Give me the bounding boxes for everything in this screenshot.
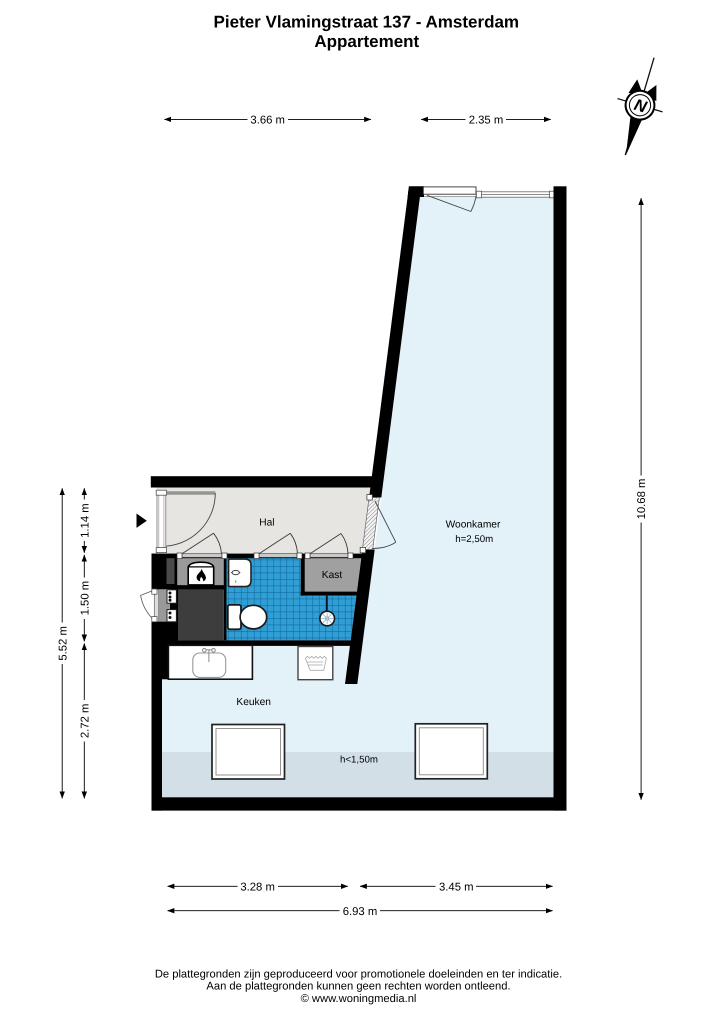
svg-text:h=2,50m: h=2,50m — [455, 534, 493, 545]
svg-text:1.50 m: 1.50 m — [79, 581, 91, 616]
svg-text:6.93 m: 6.93 m — [343, 906, 378, 918]
svg-text:Pieter Vlamingstraat 137 - Ams: Pieter Vlamingstraat 137 - Amsterdam — [214, 12, 520, 31]
svg-text:Appartement: Appartement — [314, 32, 419, 51]
svg-text:Woonkamer: Woonkamer — [446, 520, 501, 531]
svg-text:Kast: Kast — [322, 570, 343, 581]
svg-text:Hal: Hal — [259, 517, 274, 528]
svg-text:De plattegronden zijn geproduc: De plattegronden zijn geproduceerd voor … — [155, 968, 562, 980]
svg-text:Aan de plattegronden kunnen ge: Aan de plattegronden kunnen geen rechten… — [206, 981, 510, 993]
svg-text:3.66 m: 3.66 m — [250, 115, 285, 127]
svg-text:© www.woningmedia.nl: © www.woningmedia.nl — [301, 993, 417, 1005]
svg-text:2.35 m: 2.35 m — [469, 115, 504, 127]
svg-text:Keuken: Keuken — [236, 697, 271, 708]
svg-text:h<1,50m: h<1,50m — [340, 754, 378, 765]
svg-text:1.14 m: 1.14 m — [79, 503, 91, 538]
svg-text:3.28 m: 3.28 m — [240, 881, 275, 893]
svg-text:3.45 m: 3.45 m — [439, 881, 474, 893]
svg-text:5.52 m: 5.52 m — [57, 626, 69, 661]
svg-text:2.72 m: 2.72 m — [79, 704, 91, 739]
svg-text:10.68 m: 10.68 m — [636, 479, 648, 520]
